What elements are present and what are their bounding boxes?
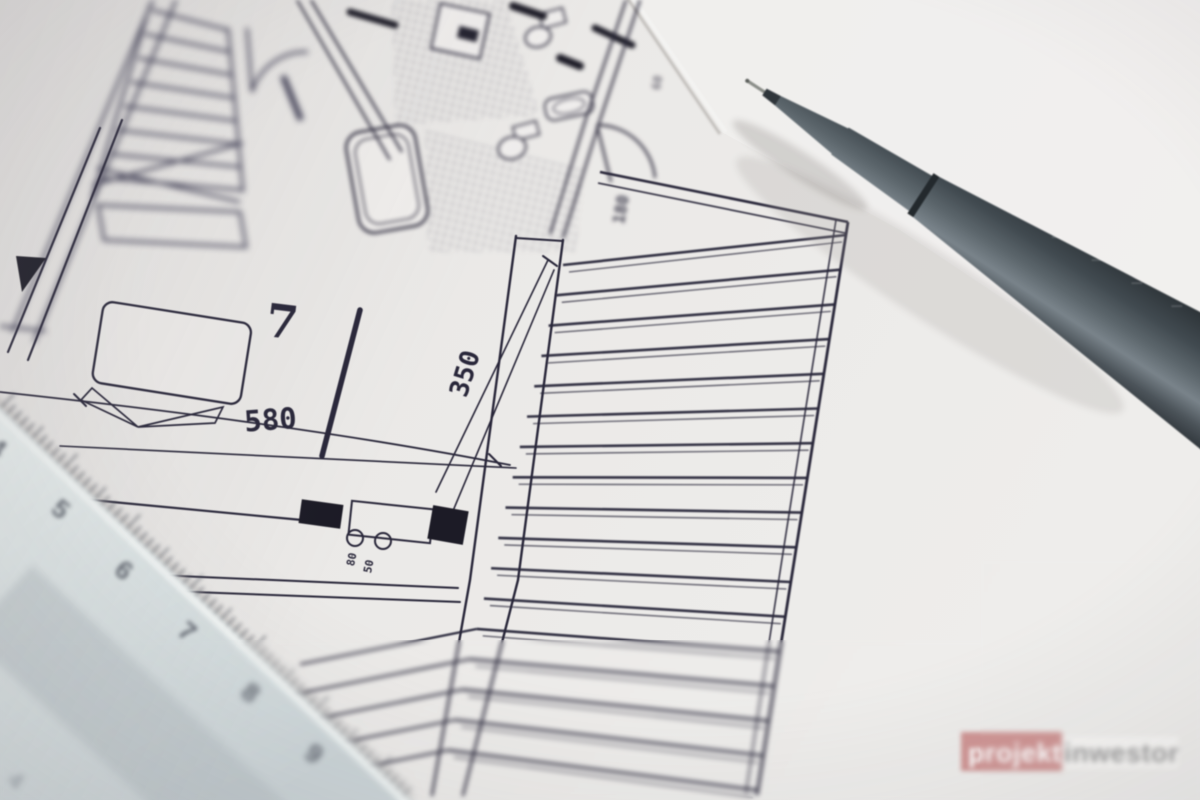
- blueprint-photo: 60 180: [0, 0, 1200, 800]
- dimension-label-80: 80: [344, 552, 359, 568]
- dimension-label-50: 50: [361, 559, 376, 575]
- watermark-text-projekt: projekt: [968, 738, 1062, 768]
- watermark: projekt inwestor: [961, 732, 1179, 771]
- watermark-text-inwestor: inwestor: [1064, 738, 1179, 768]
- room-number-label: 7: [263, 293, 301, 350]
- deck-plank-line: [519, 484, 803, 485]
- photo-canvas: 60 180: [0, 0, 1200, 800]
- dimension-label-580: 580: [243, 401, 298, 439]
- dimension-label-60: 60: [649, 74, 665, 91]
- deck-plank-line: [513, 477, 807, 478]
